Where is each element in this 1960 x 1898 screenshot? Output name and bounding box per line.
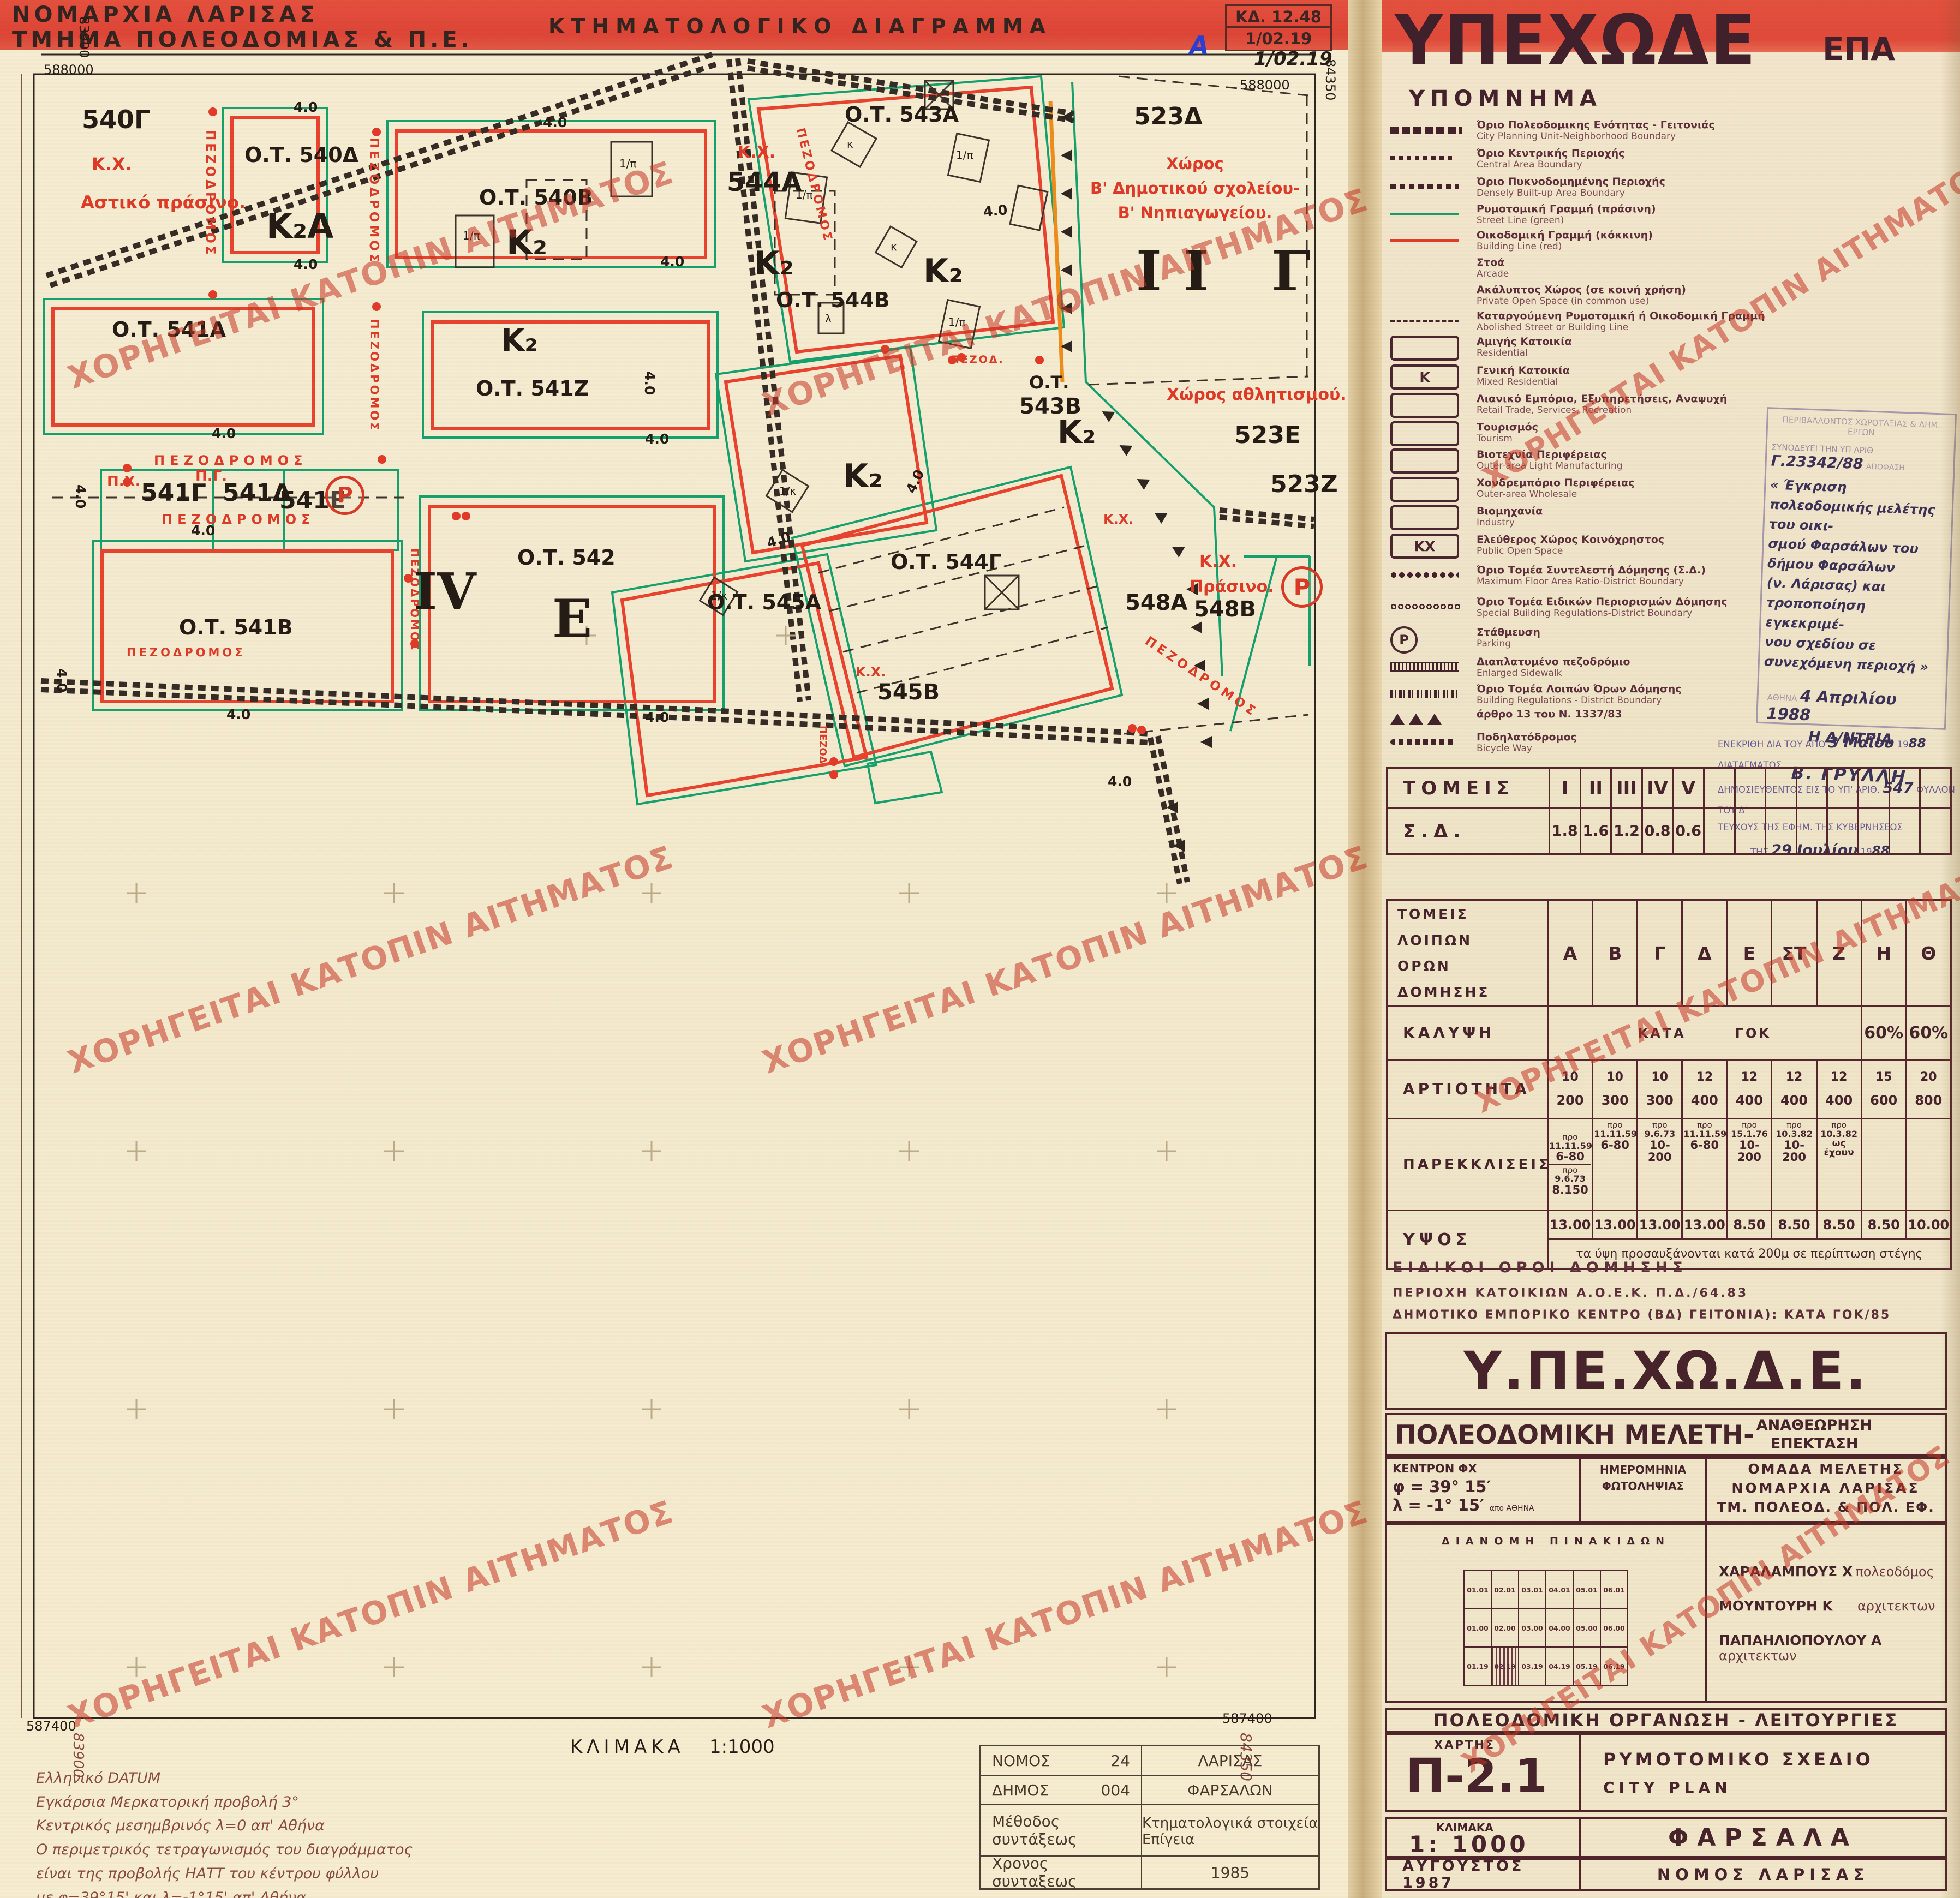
legend-en: Industry bbox=[1477, 517, 1543, 528]
legend-en: City Planning Unit-Neighborhood Boundary bbox=[1477, 131, 1715, 142]
block-ot543a-label: Ο.Τ. 543Α bbox=[845, 103, 959, 127]
epa-label: ΕΠΑ bbox=[1822, 31, 1895, 68]
coverage-h: 60% bbox=[1861, 1007, 1906, 1060]
block-ot542-label: Ο.Τ. 542 bbox=[517, 546, 616, 570]
lambda-suffix: απο ΑΘΗΝΑ bbox=[1490, 1504, 1534, 1513]
grid-easting-right-top: 84350 bbox=[1323, 59, 1338, 100]
sheet-fold-gap bbox=[1348, 0, 1382, 1898]
height-cell: 13.00 bbox=[1593, 1211, 1638, 1239]
residential-zone-symbol bbox=[1390, 336, 1459, 361]
legend-en: Maximum Floor Area Ratio-District Bounda… bbox=[1477, 576, 1706, 587]
prefecture-name: ΝΟΜΟΣ ΛΑΡΙΣΑΣ bbox=[1657, 1865, 1869, 1884]
far-boundary-symbol bbox=[1390, 572, 1459, 578]
d: 11.11.59 bbox=[1683, 1130, 1725, 1139]
mixed-residential-zone-symbol: Κ bbox=[1390, 364, 1459, 390]
enlarged-sidewalk-symbol bbox=[1390, 662, 1459, 672]
nomos-name: ΛΑΡΙΣΑΣ bbox=[1142, 1746, 1318, 1775]
stamp-hand: 88 bbox=[1909, 737, 1926, 751]
plot-cell: 10300 bbox=[1638, 1060, 1682, 1119]
pedestrian-street-label: ΠΕΖΟΔΡΟΜΟΣ bbox=[368, 319, 381, 433]
lambda-value: λ = -1° 15′ απο ΑΘΗΝΑ bbox=[1393, 1496, 1574, 1514]
parking-symbol: P bbox=[325, 476, 364, 515]
sheet-cell: 01.19 bbox=[1464, 1647, 1491, 1685]
map-scale-label: ΚΛΙΜΑΚΑ bbox=[570, 1736, 685, 1758]
plot-cell: 10300 bbox=[1593, 1060, 1638, 1119]
nomos-code: 24 bbox=[1110, 1752, 1130, 1770]
datum-note-line: Εγκάρσια Μερκατορική προβολή 3° bbox=[36, 1791, 413, 1815]
kd-index-box: ΚΔ. 12.48 1/02.19 bbox=[1225, 4, 1332, 51]
ministry-logo: ΥΠΕΧΩΔΕ bbox=[1395, 0, 1756, 81]
sd-value-cell: 0.6 bbox=[1673, 809, 1704, 854]
block-ot544b-label: Ο.Τ. 544Β bbox=[776, 288, 890, 312]
legend-en: Bicycle Way bbox=[1477, 743, 1577, 754]
stamp-subject-line: σμού Φαρσάλων του δήμου Φαρσάλων bbox=[1767, 534, 1946, 579]
grid-northing-bottomleft: 587400 bbox=[26, 1719, 76, 1734]
photo-date-label1: ΗΜΕΡΟΜΗΝΙΑ bbox=[1581, 1463, 1705, 1476]
block-ot541z-label: Ο.Τ. 541Ζ bbox=[476, 376, 589, 400]
col-head: Α bbox=[1548, 900, 1593, 1007]
block-540g-label: 540Γ bbox=[82, 105, 150, 134]
grid-easting-left-top: 83900 bbox=[76, 16, 92, 58]
special-terms-line1: ΠΕΡΙΟΧΗ ΚΑΤΟΙΚΙΩΝ Α.Ο.Ε.Κ. Π.Δ./64.83 bbox=[1393, 1286, 1748, 1300]
legend-el: άρθρο 13 του Ν. 1337/83 bbox=[1477, 708, 1622, 720]
legend-el: Όριο Πυκνοδομημένης Περιοχής bbox=[1477, 176, 1665, 188]
sector-cell: III bbox=[1611, 768, 1642, 809]
legend-en: Central Area Boundary bbox=[1477, 159, 1624, 170]
block-523e-label: 523Ε bbox=[1234, 421, 1301, 449]
terms-label-1: ΤΟΜΕΙΣ ΛΟΙΠΩΝ bbox=[1397, 906, 1472, 948]
height-cell: 13.00 bbox=[1638, 1211, 1682, 1239]
zone-k2-label: Κ₂ bbox=[843, 457, 883, 495]
sheet-title: ΚΤΗΜΑΤΟΛΟΓΙΚΟ ΔΙΑΓΡΑΜΜΑ bbox=[548, 14, 1052, 38]
sheet-cell: 02.01 bbox=[1491, 1571, 1519, 1609]
sd-ratio-table: ΤΟΜΕΙΣ I II III IV V Σ.Δ. 1.8 1.6 1.2 0.… bbox=[1386, 767, 1952, 855]
district-boundary-symbol bbox=[1390, 690, 1459, 698]
building-label: κ bbox=[847, 137, 853, 151]
dim-4.0: 4.0 bbox=[54, 668, 70, 692]
titleblock-scale-box: ΚΛΙΜΑΚΑ 1: 1000 ΦΑΡΣΑΛΑ bbox=[1385, 1817, 1947, 1858]
height-cell: 8.50 bbox=[1861, 1211, 1906, 1239]
green-548-label: Πράσινο. bbox=[1190, 577, 1274, 596]
height-cell: 8.50 bbox=[1727, 1211, 1772, 1239]
plot-cell: 12400 bbox=[1816, 1060, 1861, 1119]
bicycle-way-symbol bbox=[1390, 739, 1456, 745]
photo-date-cell: ΗΜΕΡΟΜΗΝΙΑ ΦΩΤΟΛΗΨΙΑΣ bbox=[1579, 1459, 1705, 1521]
derogation-cell bbox=[1861, 1119, 1906, 1211]
handwritten-sheet-no: 1/02.19 bbox=[1254, 48, 1332, 70]
gok: ΓΟΚ bbox=[1735, 1026, 1771, 1041]
d: 11.11.59 bbox=[1549, 1142, 1591, 1151]
titleblock-org-box: ΠΟΛΕΟΔΟΜΙΚΗ ΟΡΓΑΝΩΣΗ - ΛΕΙΤΟΥΡΓΙΕΣ bbox=[1385, 1708, 1947, 1733]
member-role: αρχιτεκτων bbox=[1857, 1598, 1935, 1614]
plot-cell: 12400 bbox=[1727, 1060, 1772, 1119]
legend-el: Ακάλυπτος Χώρος (σε κοινή χρήση) bbox=[1477, 284, 1686, 296]
urban-green-label: Αστικό πράσινο. bbox=[81, 192, 246, 213]
block-544a-label: 544Α bbox=[727, 167, 802, 197]
v: 10-200 bbox=[1639, 1139, 1681, 1163]
d: 9.6.73 bbox=[1549, 1175, 1591, 1184]
parking-tag: P bbox=[1399, 632, 1409, 648]
titleblock-distribution-box: ΔΙΑΝΟΜΗ ΠΙΝΑΚΙΔΩΝ 01.01 02.01 03.01 04.0… bbox=[1385, 1523, 1947, 1703]
sd-row-label: Σ.Δ. bbox=[1387, 809, 1550, 854]
legend-en: Private Open Space (in common use) bbox=[1477, 296, 1686, 307]
pedestrian-street-label: ΠΕΖΟΔΡΟΜΟΣ bbox=[367, 137, 381, 265]
v: 12 bbox=[1818, 1070, 1860, 1084]
abolished-line-symbol bbox=[1390, 320, 1459, 322]
zone-tag: Κ bbox=[1419, 369, 1430, 385]
datum-notes: Ελληνικό DATUM Εγκάρσια Μερκατορική προβ… bbox=[36, 1767, 413, 1898]
sd-value-cell: 1.2 bbox=[1611, 809, 1642, 854]
zone-k2-label: Κ₂ bbox=[923, 252, 963, 290]
sheet-cell: 01.00 bbox=[1464, 1609, 1491, 1647]
prefecture-cell: ΝΟΜΟΣ ΛΑΡΙΣΑΣ bbox=[1579, 1860, 1945, 1889]
zone-k2-label: Κ₂ bbox=[501, 323, 538, 358]
legend-el: Διαπλατυμένο πεζοδρόμιο bbox=[1477, 656, 1630, 668]
legend-item: Όριο Πολεοδομικης Ενότητας - ΓειτονιάςCi… bbox=[1390, 119, 1941, 142]
sector-cell: IV bbox=[1642, 768, 1673, 809]
titleblock-ministry-box: Υ.ΠΕ.ΧΩ.Δ.Ε. bbox=[1385, 1332, 1947, 1410]
legend-en: Arcade bbox=[1477, 268, 1509, 279]
wholesale-zone-symbol bbox=[1390, 477, 1459, 502]
grid-northing-topright: 588000 bbox=[1240, 77, 1290, 93]
sheet-cell-current: 02.19 bbox=[1491, 1647, 1519, 1685]
d: 10.3.82 bbox=[1773, 1130, 1815, 1139]
sheet-cell: 06.01 bbox=[1600, 1571, 1628, 1609]
legend-item: Καταργούμενη Ρυμοτομική ή Οικοδομική Γρα… bbox=[1390, 310, 1941, 333]
grid-northing-topleft: 588000 bbox=[44, 62, 94, 77]
v: ως έχουν bbox=[1818, 1139, 1860, 1159]
block-ot544c-label: Ο.Τ. 544Γ bbox=[891, 550, 1002, 574]
kx-540g-label: Κ.Χ. bbox=[92, 154, 132, 175]
legend-el: Όριο Πολεοδομικης Ενότητας - Γειτονιάς bbox=[1477, 119, 1715, 131]
legend-el: Στάθμευση bbox=[1477, 626, 1540, 638]
school-line2: Β' Δημοτικού σχολείου- bbox=[1086, 176, 1304, 201]
school-line1: Χώρος bbox=[1086, 152, 1304, 176]
height-cell: 13.00 bbox=[1548, 1211, 1593, 1239]
sector-iv-label: IV bbox=[414, 562, 476, 621]
terms-label: ΤΟΜΕΙΣ ΛΟΙΠΩΝ ΟΡΩΝ ΔΟΜΗΣΗΣ bbox=[1387, 900, 1548, 1007]
legend-en: Enlarged Sidewalk bbox=[1477, 668, 1630, 679]
derogation-cell: προ11.11.596-80 bbox=[1682, 1119, 1727, 1211]
dimos-name: ΦΑΡΣΑΛΩΝ bbox=[1142, 1776, 1318, 1804]
building-label: κ bbox=[891, 240, 897, 253]
block-545b-label: 545Β bbox=[877, 680, 940, 705]
city-name: ΦΑΡΣΑΛΑ bbox=[1668, 1824, 1858, 1852]
legend-el: Ποδηλατόδρομος bbox=[1477, 731, 1577, 743]
revision-label: ΑΝΑΘΕΩΡΗΣΗ bbox=[1756, 1416, 1872, 1435]
d: 9.6.73 bbox=[1639, 1130, 1681, 1139]
scanned-city-plan-document: ΝΟΜΑΡΧΙΑ ΛΑΡΙΣΑΣ ΤΜΗΜΑ ΠΟΛΕΟΔΟΜΙΑΣ & Π.Ε… bbox=[0, 0, 1960, 1898]
building-label: 1/κ bbox=[779, 484, 796, 498]
legend-en: Building Regulations - District Boundary bbox=[1477, 695, 1682, 706]
legend-el: Γενική Κατοικία bbox=[1477, 364, 1570, 376]
legend-el: Όριο Τομέα Λοιπών Όρων Δόμησης bbox=[1477, 683, 1682, 695]
sheet-index-cell: ΔΙΑΝΟΜΗ ΠΙΝΑΚΙΔΩΝ 01.01 02.01 03.01 04.0… bbox=[1387, 1525, 1705, 1701]
dimos-code: 004 bbox=[1101, 1781, 1130, 1799]
kx-545b-label: Κ.Χ. bbox=[856, 664, 886, 680]
d: 15.1.76 bbox=[1728, 1130, 1770, 1139]
nomos-label: ΝΟΜΟΣ bbox=[992, 1752, 1050, 1770]
sheet-right-edge-shadow bbox=[1940, 0, 1960, 1898]
building-label: 1/κ bbox=[710, 589, 727, 602]
sector-cell: I bbox=[1550, 768, 1581, 809]
stamp-print: ΕΝΕΚΡΙΘΗ ΔΙΑ ΤΟΥ ΑΠΟ bbox=[1718, 739, 1825, 750]
v: 6-80 bbox=[1594, 1139, 1636, 1151]
legend-el: Όριο Τομέα Συντελεστή Δόμησης (Σ.Δ.) bbox=[1477, 564, 1706, 576]
legend-el: Βιομηχανία bbox=[1477, 505, 1543, 517]
building-terms-table: ΤΟΜΕΙΣ ΛΟΙΠΩΝ ΟΡΩΝ ΔΟΜΗΣΗΣ Α Β Γ Δ Ε ΣΤ … bbox=[1386, 899, 1952, 1270]
lambda: λ = -1° 15′ bbox=[1393, 1496, 1484, 1514]
industry-zone-symbol bbox=[1390, 505, 1459, 530]
derogation-cell: προ10.3.8210-200 bbox=[1772, 1119, 1816, 1211]
handwritten-letter-a: Α bbox=[1190, 31, 1209, 60]
derogation-cell: προ10.3.82ως έχουν bbox=[1816, 1119, 1861, 1211]
datum-note-line: Ο περιμετρικός τετραγωνισμός του διαγράμ… bbox=[36, 1838, 413, 1862]
building-label: 1/π bbox=[796, 188, 813, 201]
derogation-cell: προ11.11.596-80 bbox=[1593, 1119, 1638, 1211]
date-cell: ΑΥΓΟΥΣΤΟΣ 1987 bbox=[1387, 1860, 1579, 1889]
px-label: Π.Χ. bbox=[107, 474, 141, 490]
legend-en: Parking bbox=[1477, 638, 1540, 649]
sd-value-cell: 0.8 bbox=[1642, 809, 1673, 854]
legend-el: Αμιγής Κατοικία bbox=[1477, 336, 1572, 348]
legend-el: Όριο Τομέα Ειδικών Περιορισμών Δόμησης bbox=[1477, 596, 1727, 608]
building-label: λ bbox=[825, 312, 832, 325]
sports-area-label: Χώρος αθλητισμού. bbox=[1167, 385, 1347, 404]
article13-symbol bbox=[1390, 714, 1442, 725]
v: 8.150 bbox=[1549, 1184, 1591, 1196]
extension-label: ΕΠΕΚΤΑΣΗ bbox=[1756, 1435, 1872, 1453]
derogation-cell: προ15.1.7610-200 bbox=[1727, 1119, 1772, 1211]
table-row: ΝΟΜΟΣ24 ΛΑΡΙΣΑΣ bbox=[981, 1746, 1318, 1775]
v: 400 bbox=[1773, 1093, 1815, 1108]
terms-label-2: ΟΡΩΝ ΔΟΜΗΣΗΣ bbox=[1397, 958, 1490, 1000]
legend-en: Public Open Space bbox=[1477, 546, 1664, 556]
kx-544a-label: Κ.Χ. bbox=[738, 143, 775, 162]
tourism-zone-symbol bbox=[1390, 421, 1459, 446]
scale-value: 1: 1000 bbox=[1409, 1831, 1529, 1858]
pedestrian-street-label: ΠΕΖΟΔΡΟΜΟΣ bbox=[162, 512, 315, 527]
v: 200 bbox=[1549, 1093, 1591, 1108]
dim-4.0: 4.0 bbox=[226, 706, 250, 722]
datum-note-line: με φ=39°15' και λ=-1°15' απ' Αθήνα bbox=[36, 1886, 413, 1898]
coverage-label: ΚΑΛΥΨΗ bbox=[1387, 1007, 1548, 1060]
dim-4.0: 4.0 bbox=[73, 484, 88, 508]
special-terms-line2: ΔΗΜΟΤΙΚΟ ΕΜΠΟΡΙΚΟ ΚΕΝΤΡΟ (ΒΔ) ΓΕΙΤΟΝΙΑ):… bbox=[1393, 1308, 1891, 1322]
block-541c-label: 541Γ bbox=[141, 479, 206, 507]
plan-type-cell: ΡΥΜΟΤΟΜΙΚΟ ΣΧΕΔΙΟ CITY PLAN bbox=[1579, 1735, 1945, 1810]
block-523z-label: 523Ζ bbox=[1270, 470, 1338, 498]
kd-sheet: 1/02.19 bbox=[1227, 28, 1330, 48]
central-boundary-symbol bbox=[1390, 156, 1456, 160]
sd-value-cell: 1.8 bbox=[1550, 809, 1581, 854]
time-label: Χρονος συνταξεως bbox=[992, 1854, 1130, 1890]
study-title: ΠΟΛΕΟΔΟΜΙΚΗ ΜΕΛΕΤΗ- bbox=[1387, 1420, 1754, 1450]
stamp-faded-line: ΠΕΡΙΒΑΛΛΟΝΤΟΣ ΧΩΡΟΤΑΞΙΑΣ & ΔΗΜ. ΕΡΓΩΝ bbox=[1772, 414, 1951, 440]
unit-boundary-symbol bbox=[1390, 127, 1462, 134]
retail-zone-symbol bbox=[1390, 393, 1459, 418]
stamp-subject-line: νου σχεδίου σε συνεχόμενη περιοχή » bbox=[1764, 632, 1943, 677]
dim-4.0: 4.0 bbox=[212, 426, 236, 441]
legend-el: Όριο Κεντρικής Περιοχής bbox=[1477, 147, 1624, 159]
sheet-cell: 05.01 bbox=[1573, 1571, 1600, 1609]
legend-en: Mixed Residential bbox=[1477, 376, 1570, 387]
member-role: πολεοδόμος bbox=[1855, 1564, 1934, 1579]
sheet-info-table: ΝΟΜΟΣ24 ΛΑΡΙΣΑΣ ΔΗΜΟΣ004 ΦΑΡΣΑΛΩΝ Μέθοδο… bbox=[979, 1745, 1320, 1890]
table-row: Μέθοδος συντάξεως Κτηματολογικά στοιχεία… bbox=[981, 1804, 1318, 1855]
v: 300 bbox=[1594, 1093, 1636, 1108]
legend-el: Ρυμοτομική Γραμμή (πράσινη) bbox=[1477, 203, 1656, 215]
sheet-cell: 04.01 bbox=[1546, 1571, 1573, 1609]
v: 400 bbox=[1728, 1093, 1770, 1108]
parking-symbol: P bbox=[1281, 566, 1323, 608]
dimos-label: ΔΗΜΟΣ bbox=[992, 1781, 1049, 1799]
stamp-print: 19 bbox=[1897, 739, 1909, 750]
method-value: Κτηματολογικά στοιχεία Επίγεια bbox=[1142, 1805, 1318, 1855]
dim-4.0: 4.0 bbox=[645, 431, 669, 447]
v: 10 bbox=[1594, 1070, 1636, 1084]
sheet-cell: 02.00 bbox=[1491, 1609, 1519, 1647]
datum-note-line: είναι της προβολής ΗΑΤΤ του κέντρου φύλλ… bbox=[36, 1862, 413, 1886]
pedestrian-street-label: ΠΕΖΟΔΡΟΜΟΣ bbox=[154, 453, 308, 468]
dim-4.0: 4.0 bbox=[294, 256, 318, 272]
parking-letter: P bbox=[337, 483, 352, 508]
special-terms-title: ΕΙΔΙΚΟΙ ΟΡΟΙ ΔΟΜΗΣΗΣ bbox=[1393, 1259, 1688, 1276]
legend-item: Όριο Πυκνοδομημένης ΠεριοχήςDensely Buil… bbox=[1390, 176, 1941, 199]
distribution-label: ΔΙΑΝΟΜΗ ΠΙΝΑΚΙΔΩΝ bbox=[1442, 1535, 1670, 1547]
v: 12 bbox=[1773, 1070, 1815, 1084]
v: 6-80 bbox=[1683, 1139, 1725, 1151]
pedestrian-street-label: ΠΕΖΟΔΡΟΜΟΣ bbox=[127, 646, 246, 659]
sector-cell: II bbox=[1580, 768, 1611, 809]
stamp-subject-line: (ν. Λάρισας) και τροποποίηση εγκεκριμέ- bbox=[1765, 573, 1945, 638]
stamp-date: 4 Απριλίου 1988 bbox=[1766, 687, 1897, 725]
plot-cell: 12400 bbox=[1682, 1060, 1727, 1119]
city-cell: ΦΑΡΣΑΛΑ bbox=[1579, 1819, 1945, 1856]
v: 400 bbox=[1683, 1093, 1725, 1108]
zone-tag: ΚΧ bbox=[1414, 538, 1436, 554]
titleblock-date-box: ΑΥΓΟΥΣΤΟΣ 1987 ΝΟΜΟΣ ΛΑΡΙΣΑΣ bbox=[1385, 1858, 1947, 1891]
sd-value-cell: 1.6 bbox=[1580, 809, 1611, 854]
legend-el: Τουρισμός bbox=[1477, 421, 1538, 433]
sheet-cell: 04.00 bbox=[1546, 1609, 1573, 1647]
height-cell: 8.50 bbox=[1816, 1211, 1861, 1239]
method-label: Μέθοδος συντάξεως bbox=[992, 1812, 1130, 1848]
plot-cell: 15600 bbox=[1861, 1060, 1906, 1119]
center-coords-cell: ΚΕΝΤΡΟΝ ΦΧ φ = 39° 15′ λ = -1° 15′ απο Α… bbox=[1387, 1459, 1579, 1521]
legend-title: ΥΠΟΜΝΗΜΑ bbox=[1409, 86, 1602, 111]
dim-4.0: 4.0 bbox=[191, 523, 215, 538]
building-line-symbol bbox=[1390, 239, 1459, 242]
sheet-cell: 05.00 bbox=[1573, 1609, 1600, 1647]
v: 10-200 bbox=[1728, 1139, 1770, 1163]
dim-4.0: 4.0 bbox=[294, 99, 318, 115]
dim-4.0: 4.0 bbox=[543, 115, 567, 130]
col-head: Γ bbox=[1638, 900, 1682, 1007]
member-name: ΠΑΠΑΗΛΙΟΠΟΥΛΟΥ Α bbox=[1719, 1632, 1881, 1648]
v: 400 bbox=[1818, 1093, 1860, 1108]
date-value: ΑΥΓΟΥΣΤΟΣ 1987 bbox=[1402, 1858, 1579, 1891]
approval-stamp: ΠΕΡΙΒΑΛΛΟΝΤΟΣ ΧΩΡΟΤΑΞΙΑΣ & ΔΗΜ. ΕΡΓΩΝ ΣΥ… bbox=[1756, 407, 1957, 730]
sectors-row-label: ΤΟΜΕΙΣ bbox=[1387, 768, 1550, 809]
v: 12 bbox=[1683, 1070, 1725, 1084]
col-head: Β bbox=[1593, 900, 1638, 1007]
kx-523-label: Κ.Χ. bbox=[1103, 512, 1133, 527]
table-row: ΔΗΜΟΣ004 ΦΑΡΣΑΛΩΝ bbox=[981, 1775, 1318, 1804]
block-ot543b-ot: Ο.Τ. bbox=[1029, 372, 1069, 393]
legend-en: Densely Built-up Area Boundary bbox=[1477, 188, 1665, 199]
sector-cell: V bbox=[1673, 768, 1704, 809]
datum-note-line: Ελληνικό DATUM bbox=[36, 1767, 413, 1791]
dim-4.0: 4.0 bbox=[983, 202, 1008, 220]
v: 300 bbox=[1639, 1093, 1681, 1108]
agency-line1: ΝΟΜΑΡΧΙΑ ΛΑΡΙΣΑΣ bbox=[12, 2, 319, 27]
block-548b-label: 548Β bbox=[1194, 597, 1256, 622]
kx-548-label: Κ.Χ. bbox=[1199, 552, 1237, 571]
grid-northing-bottomright: 587400 bbox=[1222, 1711, 1272, 1726]
legend-en: Residential bbox=[1477, 348, 1572, 358]
street-line-symbol bbox=[1390, 213, 1459, 215]
dim-4.0: 4.0 bbox=[660, 254, 684, 270]
public-open-space-symbol: ΚΧ bbox=[1390, 534, 1459, 559]
v: 6-80 bbox=[1549, 1151, 1591, 1163]
titleblock-study-box: ΠΟΛΕΟΔΟΜΙΚΗ ΜΕΛΕΤΗ- ΑΝΑΘΕΩΡΗΣΗ ΕΠΕΚΤΑΣΗ bbox=[1385, 1413, 1947, 1457]
pedestrian-street-label: ΠΕΖΟΔΡΟΜΟΣ bbox=[203, 130, 217, 258]
block-ot541b-label: Ο.Τ. 541Β bbox=[179, 615, 293, 639]
v: 600 bbox=[1863, 1093, 1905, 1108]
block-548a-label: 548Α bbox=[1125, 590, 1187, 615]
zone-k2-label: Κ₂ bbox=[754, 244, 794, 283]
kd-number: ΚΔ. 12.48 bbox=[1227, 6, 1330, 28]
dense-boundary-symbol bbox=[1390, 184, 1459, 189]
plan-name-en: CITY PLAN bbox=[1603, 1779, 1945, 1797]
map-scale-value: 1:1000 bbox=[709, 1736, 775, 1758]
time-value: 1985 bbox=[1142, 1857, 1318, 1888]
scale-cell: ΚΛΙΜΑΚΑ 1: 1000 bbox=[1387, 1819, 1579, 1856]
building-label: 1/π bbox=[956, 148, 973, 161]
member-role: αρχιτεκτων bbox=[1719, 1648, 1797, 1663]
derogation-cell: προ11.11.596-80 προ9.6.738.150 bbox=[1548, 1119, 1593, 1211]
phi-value: φ = 39° 15′ bbox=[1393, 1477, 1574, 1496]
sector-e-label: Ε bbox=[552, 588, 592, 650]
derogations-label: ΠΑΡΕΚΚΛΙΣΕΙΣ bbox=[1387, 1119, 1548, 1211]
dim-4.0: 4.0 bbox=[642, 371, 658, 395]
table-row: Χρονος συνταξεως 1985 bbox=[981, 1855, 1318, 1888]
stamp-hand: 3 Μαΐου bbox=[1828, 734, 1894, 751]
sheet-cell: 01.01 bbox=[1464, 1571, 1491, 1609]
stamp-city: ΑΘΗΝΑ bbox=[1767, 692, 1797, 703]
block-523d-label: 523Δ bbox=[1134, 103, 1203, 130]
ministry-title: Υ.ΠΕ.ΧΩ.Δ.Ε. bbox=[1463, 1340, 1868, 1402]
light-manufacturing-zone-symbol bbox=[1390, 448, 1459, 474]
d: 11.11.59 bbox=[1594, 1130, 1636, 1139]
plan-name-el: ΡΥΜΟΤΟΜΙΚΟ ΣΧΕΔΙΟ bbox=[1603, 1749, 1945, 1770]
parking-letter: P bbox=[1294, 574, 1311, 601]
v: 10 bbox=[1639, 1070, 1681, 1084]
dim-4.0: 4.0 bbox=[1108, 774, 1132, 789]
pez-short-label: ΠΕΖΟΔ. bbox=[817, 726, 828, 767]
sheet-cell: 03.19 bbox=[1519, 1647, 1546, 1685]
dim-4.0: 4.0 bbox=[645, 709, 669, 725]
legend-el: Οικοδομική Γραμμή (κόκκινη) bbox=[1477, 229, 1653, 241]
v: 15 bbox=[1863, 1070, 1905, 1084]
v: 12 bbox=[1728, 1070, 1770, 1084]
legend-en: Street Line (green) bbox=[1477, 215, 1656, 226]
stamp-protocol-no: Γ.23342/88 bbox=[1771, 452, 1863, 472]
stamp-subject-line: « Έγκριση πολεοδομικής μελέτης του οικι- bbox=[1768, 475, 1949, 540]
legend-el: Ελεύθερος Χώρος Κοινόχρηστος bbox=[1477, 534, 1664, 546]
zone-k2a-label: Κ₂Α bbox=[266, 206, 333, 246]
